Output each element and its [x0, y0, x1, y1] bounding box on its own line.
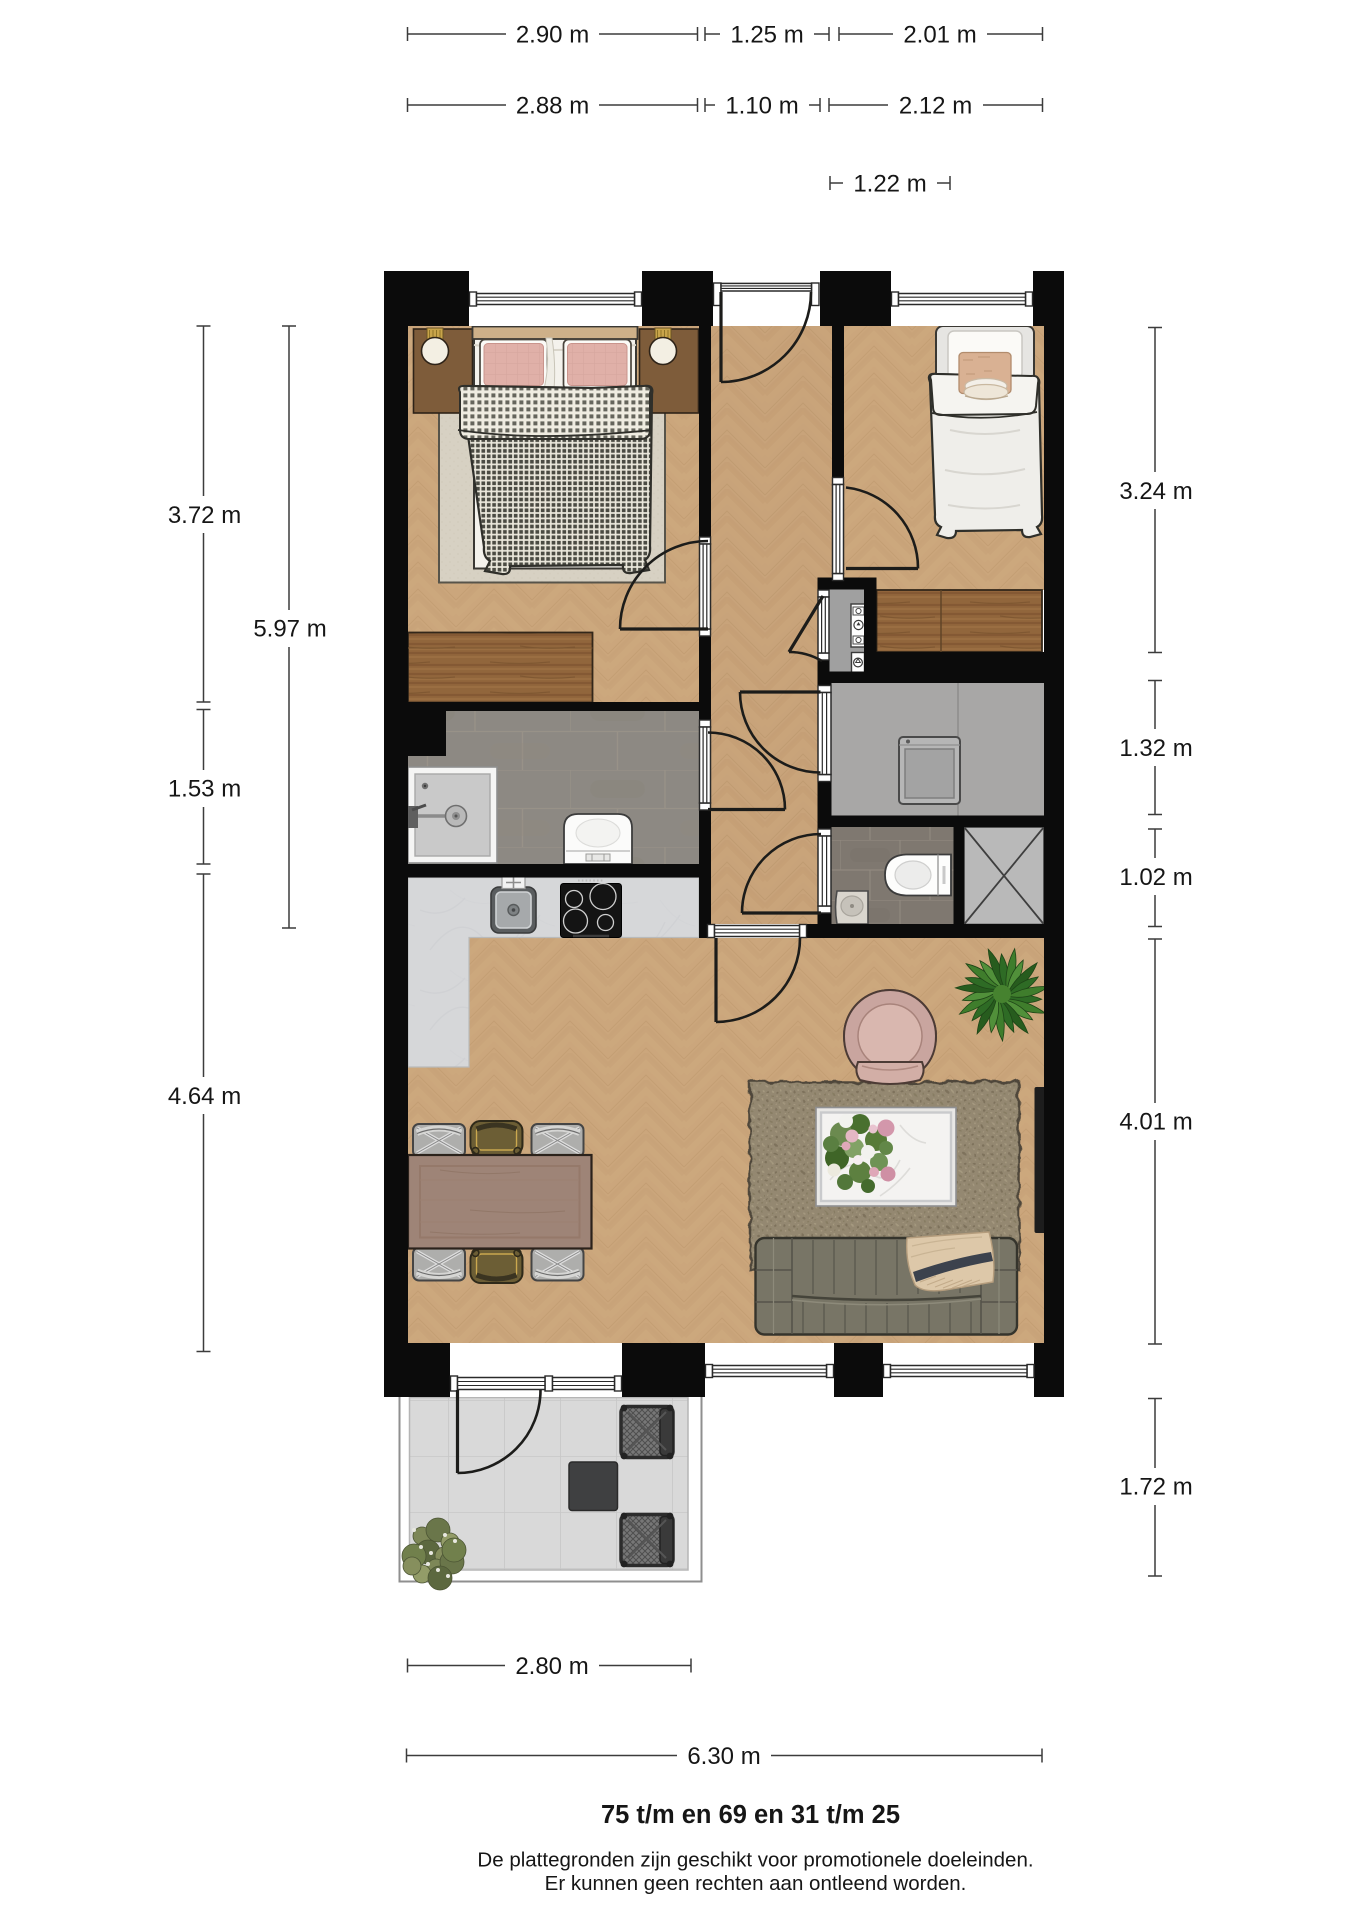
svg-text:1.32 m: 1.32 m: [1119, 735, 1192, 762]
svg-text:2.01 m: 2.01 m: [903, 22, 976, 49]
svg-text:1.72 m: 1.72 m: [1119, 1474, 1192, 1501]
svg-text:1.10 m: 1.10 m: [725, 93, 798, 120]
svg-text:2.80 m: 2.80 m: [515, 1653, 588, 1680]
svg-text:3.24 m: 3.24 m: [1119, 478, 1192, 505]
svg-text:5.97 m: 5.97 m: [253, 616, 326, 643]
svg-text:6.30 m: 6.30 m: [687, 1743, 760, 1770]
svg-text:1.02 m: 1.02 m: [1119, 864, 1192, 891]
svg-text:75 t/m en 69 en 31 t/m 25: 75 t/m en 69 en 31 t/m 25: [601, 1801, 900, 1829]
svg-text:De plattegronden zijn geschikt: De plattegronden zijn geschikt voor prom…: [477, 1849, 1033, 1872]
svg-text:4.01 m: 4.01 m: [1119, 1109, 1192, 1136]
svg-text:1.53 m: 1.53 m: [168, 776, 241, 803]
svg-text:3.72 m: 3.72 m: [168, 502, 241, 529]
svg-text:4.64 m: 4.64 m: [168, 1083, 241, 1110]
svg-text:2.90 m: 2.90 m: [516, 22, 589, 49]
svg-text:1.22 m: 1.22 m: [853, 171, 926, 198]
svg-text:Er kunnen geen rechten aan ont: Er kunnen geen rechten aan ontleend word…: [545, 1872, 967, 1895]
svg-text:1.25 m: 1.25 m: [730, 22, 803, 49]
svg-text:2.88 m: 2.88 m: [516, 93, 589, 120]
svg-text:2.12 m: 2.12 m: [899, 93, 972, 120]
